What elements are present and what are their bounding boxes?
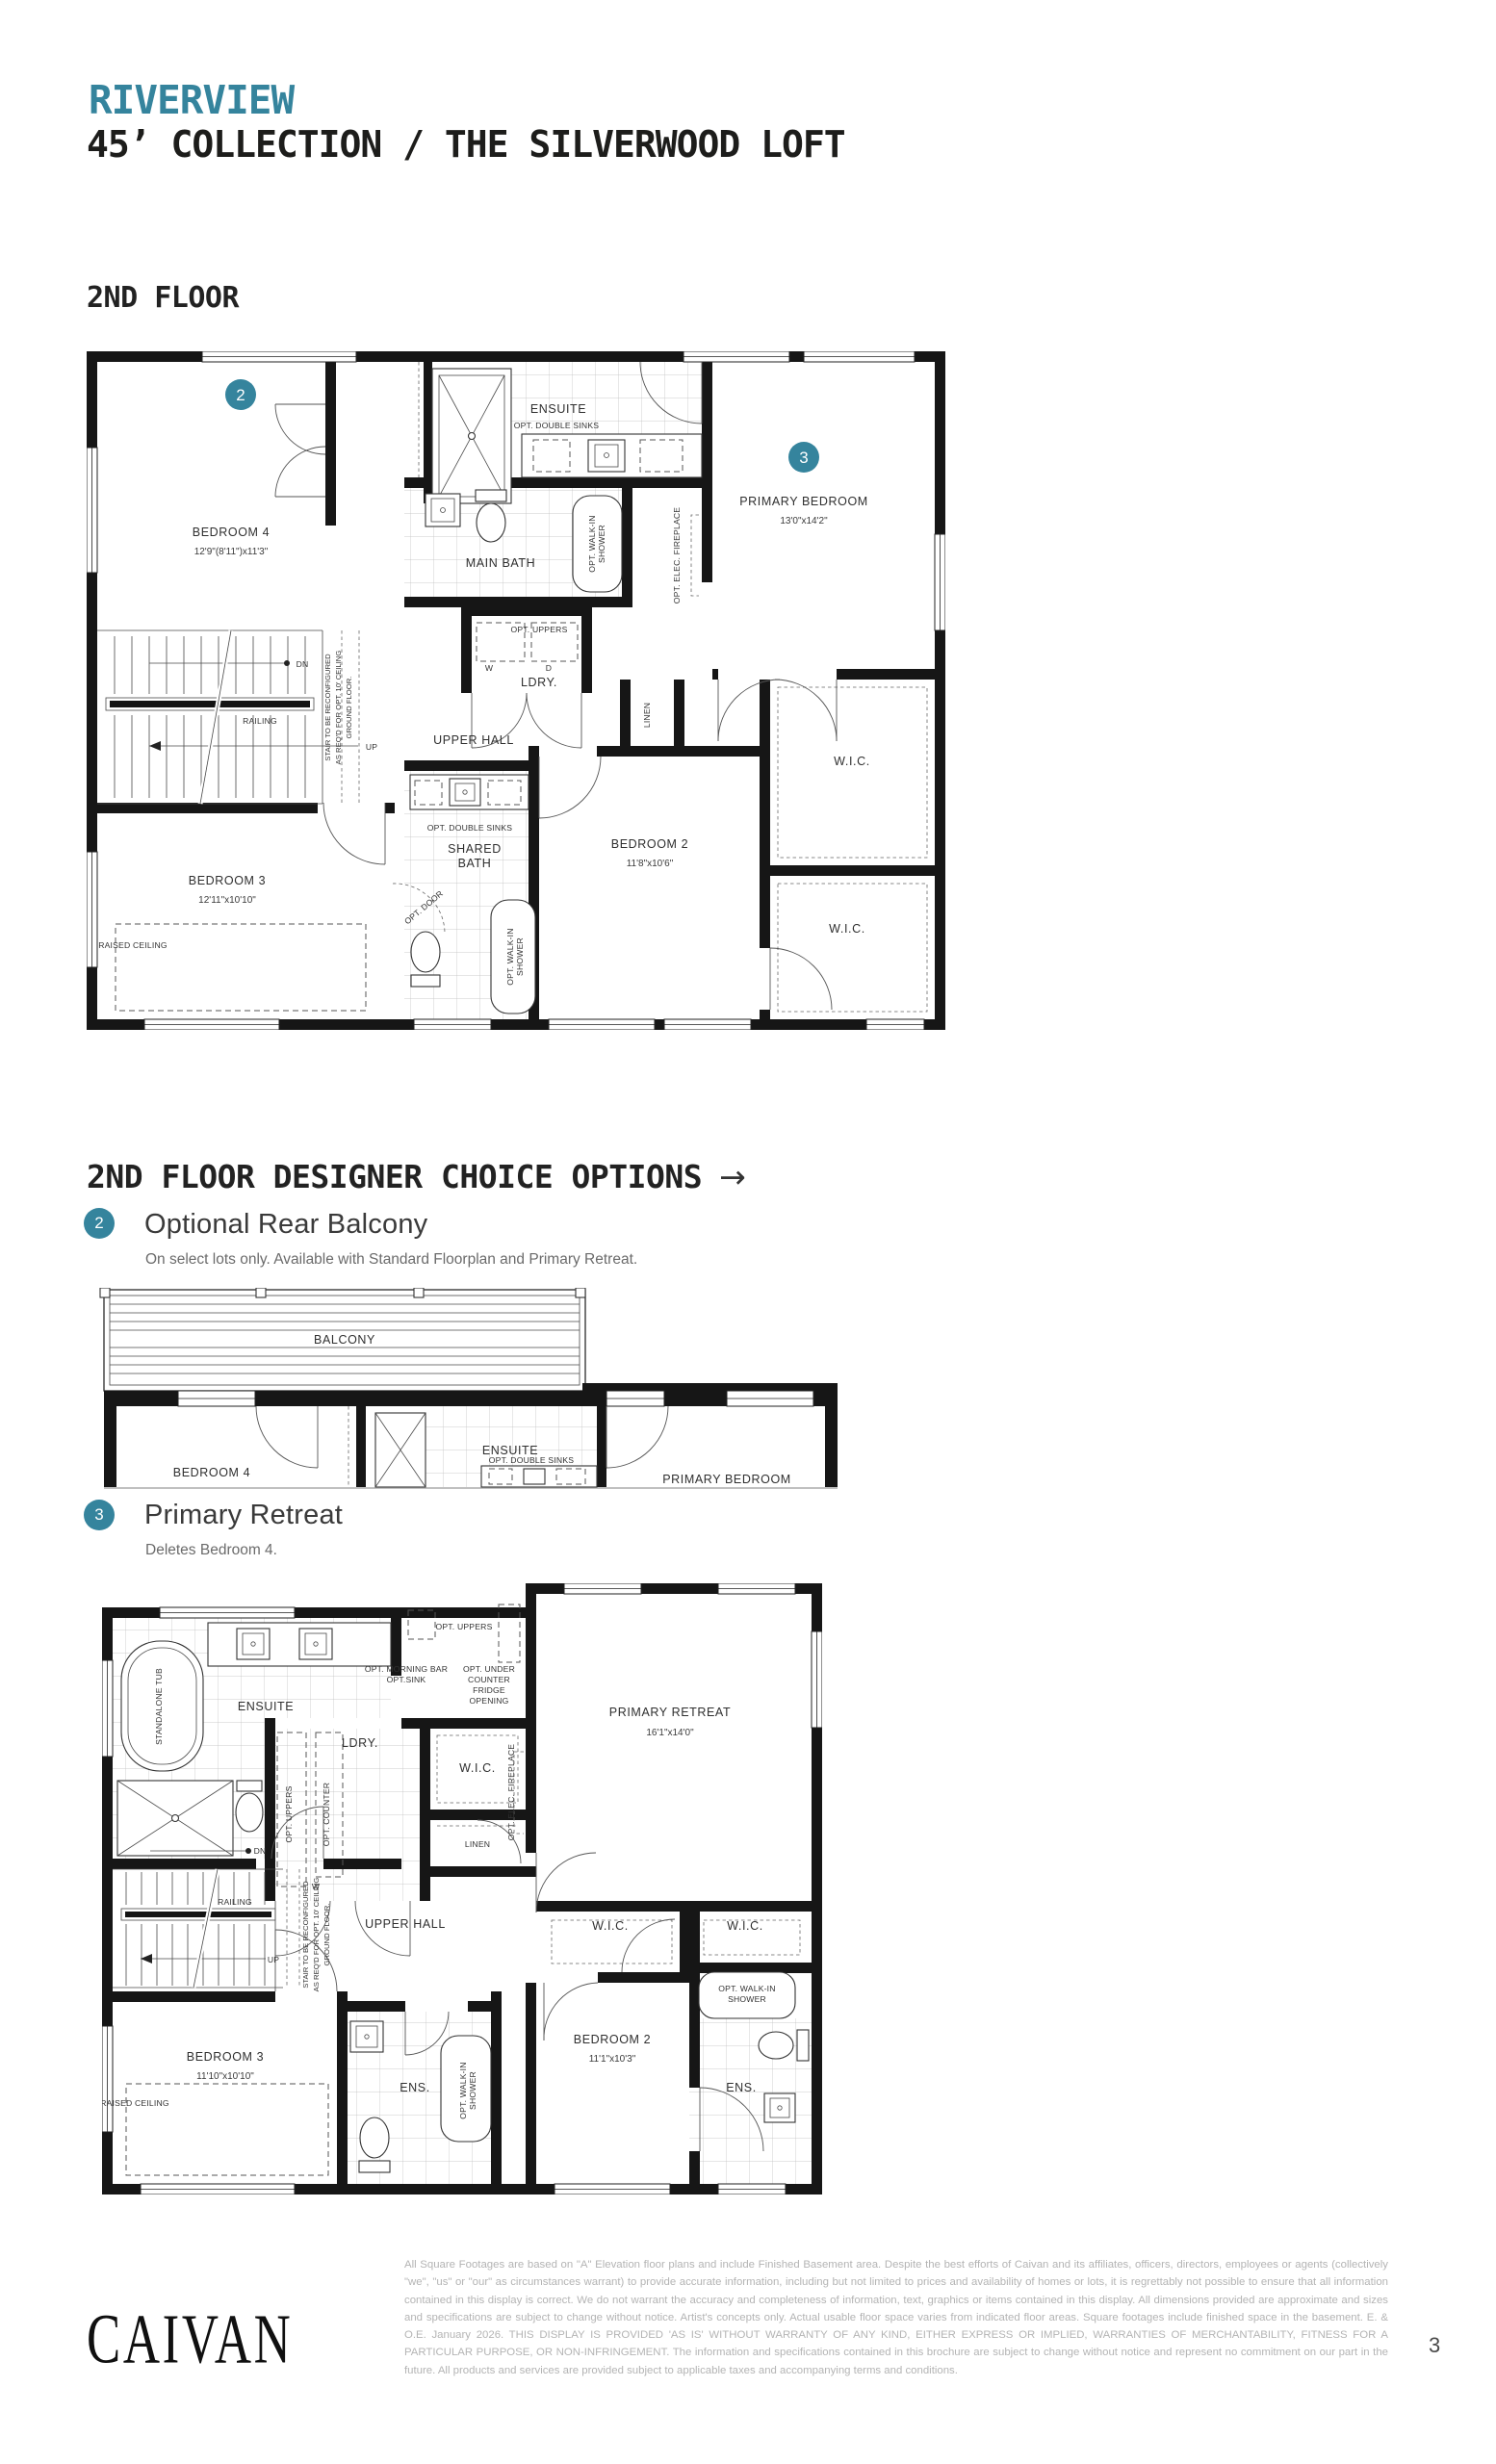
option-2-title: Optional Rear Balcony — [144, 1209, 427, 1241]
stair-note-line3: GROUND FLOOR. — [345, 677, 353, 739]
options-heading: 2ND FLOOR DESIGNER CHOICE OPTIONS — [87, 1158, 702, 1195]
retreat-staircase — [113, 1848, 283, 1988]
label-retreat-ens2: ENS. — [726, 2081, 757, 2094]
label-standalone-tub: STANDALONE TUB — [154, 1668, 164, 1745]
label-dryer: D — [546, 663, 552, 673]
label-raised-ceiling: RAISED CEILING — [98, 940, 168, 950]
marker-2-number: 2 — [236, 386, 245, 404]
option-marker-3: 3 — [788, 442, 819, 473]
label-railing: RAILING — [243, 716, 277, 726]
label-dn: DN — [297, 659, 309, 669]
room-label-ensuite: ENSUITE — [530, 402, 586, 416]
dims-retreat-bedroom2: 11'1"x10'3" — [589, 2054, 636, 2065]
options-heading-row: 2ND FLOOR DESIGNER CHOICE OPTIONS → — [87, 1158, 745, 1195]
label-retreat-dn: DN — [254, 1846, 267, 1856]
balcony-deck: BALCONY — [100, 1288, 585, 1391]
page-title: 45’ COLLECTION / THE SILVERWOOD LOFT — [87, 123, 845, 166]
label-retreat-ldry: LDRY. — [342, 1736, 378, 1750]
room-label-wic1: W.I.C. — [834, 755, 870, 768]
label-opt-double-sinks-shared: OPT. DOUBLE SINKS — [427, 823, 512, 833]
label-opt-counter: OPT. COUNTER — [322, 1783, 331, 1846]
room-dims-bedroom2: 11'8"x10'6" — [627, 859, 674, 869]
label-retreat-opt-uppers: OPT. UPPERS — [435, 1622, 492, 1631]
room-label-wic2: W.I.C. — [829, 922, 865, 936]
room-dims-bedroom3: 12'11"x10'10" — [198, 895, 256, 906]
label-balcony: BALCONY — [314, 1333, 375, 1347]
label-retreat-wic-b: W.I.C. — [727, 1919, 763, 1933]
retreat-stair-note-line1: STAIR TO BE RECONFIGURED — [301, 1881, 310, 1989]
stair-note-line1: STAIR TO BE RECONFIGURED — [323, 654, 332, 761]
option-2-badge: 2 — [84, 1208, 115, 1239]
stair-note-line2: AS REQ'D FOR OPT. 10' CEILING — [334, 651, 343, 765]
option-3-title: Primary Retreat — [144, 1500, 343, 1531]
brochure-page: RIVERVIEW 45’ COLLECTION / THE SILVERWOO… — [0, 0, 1496, 2464]
retreat-stair-note-line3: GROUND FLOOR. — [322, 1904, 331, 1966]
balcony-rooms: BEDROOM 4 ENSUITE OPT. DOUBLE SINKS PRIM… — [104, 1406, 838, 1488]
floor-heading: 2ND FLOOR — [87, 281, 239, 315]
stair-note: STAIR TO BE RECONFIGURED AS REQ'D FOR OP… — [323, 651, 353, 765]
room-label-bedroom4: BEDROOM 4 — [193, 526, 270, 539]
room-label-bedroom2: BEDROOM 2 — [611, 837, 688, 851]
dims-retreat-bedroom3: 11'10"x10'10" — [196, 2071, 254, 2082]
label-opt-uppers: OPT. UPPERS — [510, 625, 567, 634]
label-opt-uppers-vertical: OPT. UPPERS — [284, 1785, 294, 1842]
option-3-badge: 3 — [84, 1500, 115, 1530]
label-retreat-ensuite: ENSUITE — [238, 1700, 294, 1713]
label-retreat-bedroom2: BEDROOM 2 — [574, 2033, 651, 2046]
caivan-logo: CAIVAN — [87, 2299, 293, 2380]
label-retreat-upper-hall: UPPER HALL — [365, 1917, 446, 1931]
label-opt-double-sinks: OPT. DOUBLE SINKS — [514, 421, 599, 430]
label-retreat-raised-ceiling: RAISED CEILING — [102, 2098, 169, 2108]
page-number: 3 — [1429, 2333, 1440, 2358]
option-marker-2: 2 — [225, 379, 256, 410]
disclaimer-text: All Square Footages are based on "A" Ele… — [404, 2256, 1388, 2379]
label-retreat-linen: LINEN — [465, 1839, 490, 1849]
room-dims-bedroom4: 12'9"(8'11")x11'3" — [194, 547, 269, 557]
label-retreat-bedroom3: BEDROOM 3 — [187, 2050, 264, 2064]
label-retreat-fireplace: OPT. ELEC. FIREPLACE — [506, 1744, 516, 1841]
label-retreat-up: UP — [268, 1955, 279, 1964]
label-retreat-wic-a: W.I.C. — [592, 1919, 629, 1933]
label-retreat-railing: RAILING — [218, 1897, 252, 1907]
option-3-number: 3 — [94, 1505, 103, 1525]
dims-primary-retreat: 16'1"x14'0" — [646, 1728, 694, 1738]
marker-3-number: 3 — [799, 449, 808, 467]
room-label-primary-bedroom: PRIMARY BEDROOM — [739, 495, 868, 508]
retreat-stair-note-line2: AS REQ'D FOR OPT. 10' CEILING — [312, 1878, 321, 1992]
primary-retreat-plan: STANDALONE TUB ENSUITE OPT. UPPERS OPT. … — [102, 1583, 822, 2194]
room-label-main-bath: MAIN BATH — [466, 556, 536, 570]
label-balcony-primary: PRIMARY BEDROOM — [662, 1473, 791, 1486]
label-balcony-bedroom4: BEDROOM 4 — [173, 1466, 250, 1479]
label-primary-retreat: PRIMARY RETREAT — [609, 1706, 731, 1719]
room-label-upper-hall: UPPER HALL — [433, 733, 514, 747]
option-3-description: Deletes Bedroom 4. — [145, 1542, 277, 1559]
label-balcony-opt-sinks: OPT. DOUBLE SINKS — [489, 1455, 574, 1465]
label-linen: LINEN — [642, 703, 652, 728]
second-floor-plan: 2 3 BEDROOM 4 12'9"(8'11")x11'3" ENSUITE… — [87, 351, 945, 1030]
room-dims-primary-bedroom: 13'0"x14'2" — [780, 516, 828, 526]
balcony-option-plan: BALCONY BEDROOM 4 ENSUITE — [96, 1288, 838, 1492]
options-arrow-icon: → — [719, 1158, 745, 1195]
label-fridge-opening: OPT. UNDERCOUNTERFRIDGEOPENING — [463, 1664, 515, 1706]
option-2-description: On select lots only. Available with Stan… — [145, 1251, 637, 1269]
room-label-ldry: LDRY. — [521, 676, 557, 689]
option-2-number: 2 — [94, 1214, 103, 1233]
label-retreat-wic-top: W.I.C. — [459, 1761, 496, 1775]
room-label-bedroom3: BEDROOM 3 — [189, 874, 266, 887]
label-up: UP — [366, 742, 377, 752]
label-opt-elec-fireplace: OPT. ELEC. FIREPLACE — [672, 507, 682, 604]
label-retreat-ens1: ENS. — [400, 2081, 430, 2094]
community-name: RIVERVIEW — [89, 77, 294, 123]
staircase — [97, 630, 358, 804]
label-washer: W — [485, 663, 494, 673]
